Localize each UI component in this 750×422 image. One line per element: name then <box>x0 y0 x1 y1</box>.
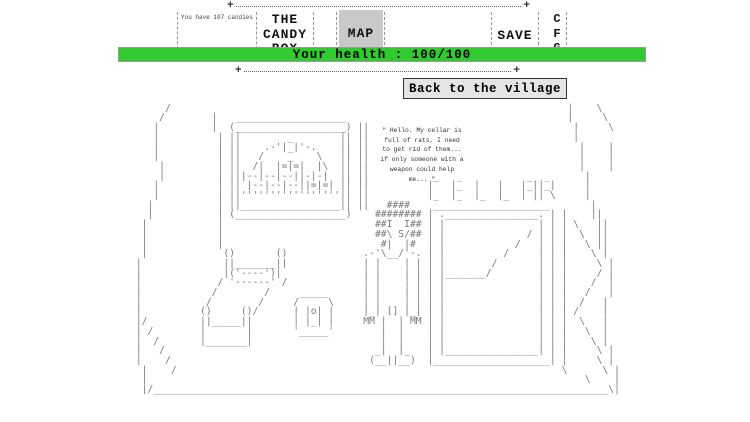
save-button-label: SAVE <box>497 28 532 43</box>
config-letter: F <box>547 27 567 42</box>
dotted-line <box>236 6 522 7</box>
back-to-village-button[interactable]: Back to the village <box>403 78 567 99</box>
game-title-line: CANDY <box>250 28 320 43</box>
health-bar: Your health : 100/100 <box>118 47 646 62</box>
dashed-border-bottom: + + <box>235 66 520 76</box>
back-to-village-label: Back to the village <box>409 82 561 96</box>
health-bar-label: Your health : 100/100 <box>293 48 472 62</box>
plus-sign: + <box>523 0 530 12</box>
dotted-line <box>244 71 512 72</box>
plus-sign: + <box>227 0 234 12</box>
plus-sign: + <box>235 65 242 77</box>
plus-sign: + <box>513 65 520 77</box>
game-title-line: THE <box>250 13 320 28</box>
map-button-label: MAP <box>348 26 374 41</box>
quest-speech: " Hello. My cellar is full of rats, I ne… <box>366 126 478 184</box>
candy-counter-label: You have 107 candies <box>181 14 253 21</box>
config-letter: C <box>547 12 567 27</box>
save-button[interactable]: SAVE <box>492 28 538 43</box>
